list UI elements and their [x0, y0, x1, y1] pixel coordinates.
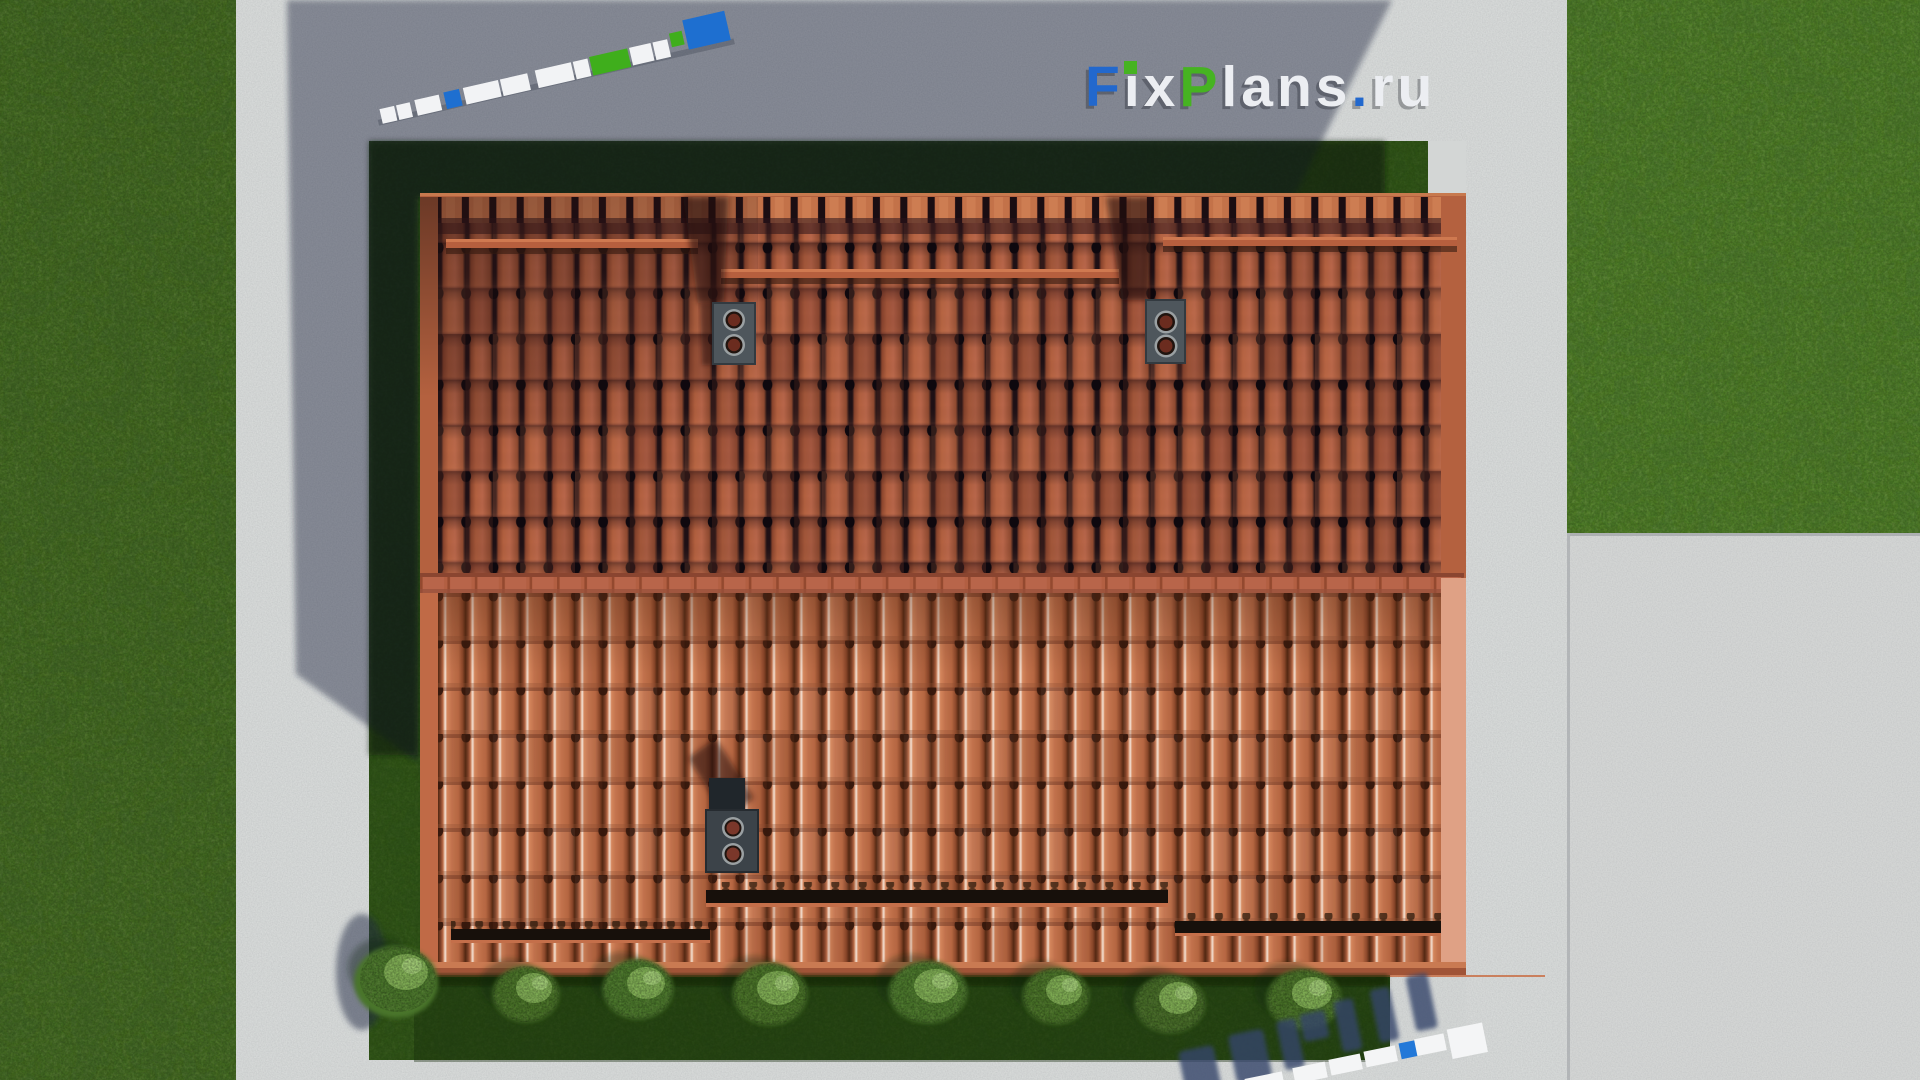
svg-text:FixPlans.ru: FixPlans.ru: [1085, 55, 1436, 119]
